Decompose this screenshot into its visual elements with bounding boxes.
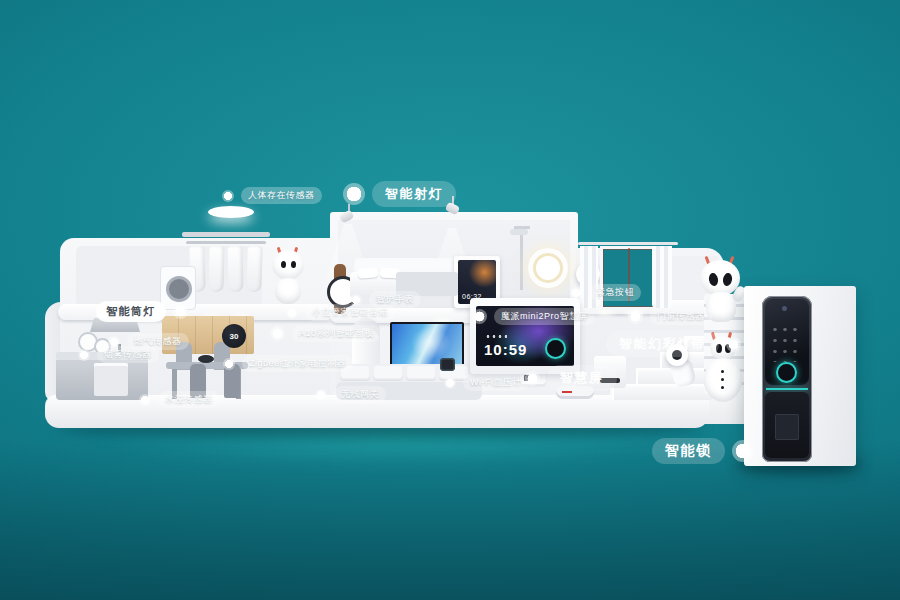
curtain-rod — [578, 242, 678, 245]
marker-dot-icon — [628, 309, 643, 324]
label-text: 水浸传感器 — [158, 391, 220, 408]
ceiling-light — [208, 206, 254, 218]
label-text: 智慧屏 — [547, 365, 617, 391]
label-wireless-gateway: 无线网关 — [315, 386, 386, 403]
label-text: 智护手表 — [369, 291, 421, 308]
screen-speaker-icon — [545, 338, 566, 359]
screen-status-icons — [485, 335, 507, 338]
marker-dot-icon — [732, 440, 754, 462]
marker-dot-icon — [78, 349, 90, 361]
label-text: 烟雾传感器 — [97, 346, 159, 363]
label-zigbee-ir-controller: Zigbee红外家电控制器 — [223, 355, 353, 372]
marker-dot-icon — [343, 183, 365, 205]
smart-panel-device: 30 — [222, 324, 246, 348]
drying-rack-rod — [186, 241, 266, 244]
label-text: A10系列智能面板 — [292, 325, 381, 342]
lock-sensor-pad — [775, 414, 799, 440]
label-smart-lock: 智能锁 — [652, 438, 754, 464]
label-door-window-sensor: 门窗传感器 — [628, 308, 712, 325]
sofa-cushion — [406, 366, 436, 381]
label-text: 魔派mini2Pro智慧屏 — [494, 308, 595, 325]
washing-machine-door — [166, 276, 192, 302]
label-text: 智能锁 — [652, 438, 725, 464]
hanging-cloth — [246, 246, 263, 292]
dishwasher — [94, 363, 128, 396]
label-a10-smart-panel: A10系列智能面板 — [270, 325, 381, 342]
sofa-cushion — [373, 366, 403, 381]
smart-home-poster: 30 06:32 10:59 — [0, 0, 900, 600]
fingerprint-ring-icon — [776, 362, 797, 383]
label-text: Wi-Fi血压计 — [463, 374, 529, 391]
marker-dot-icon — [139, 394, 151, 406]
marker-dot-icon — [173, 304, 188, 319]
screen-time: 10:59 — [484, 341, 527, 358]
stair-step — [612, 384, 712, 400]
label-text: 智能幻彩灯带 — [606, 331, 719, 357]
label-text: Zigbee红外家电控制器 — [242, 355, 353, 372]
label-light-strip: 智能幻彩灯带 — [606, 331, 741, 357]
marker-dot-icon — [570, 287, 582, 299]
label-care-watch: 智护手表 — [350, 291, 421, 308]
label-human-presence-sensor: 人体存在传感器 — [222, 187, 322, 204]
label-water-leak-sensor: 水浸传感器 — [139, 391, 220, 408]
marker-dot-icon — [350, 294, 362, 306]
lock-keypad — [770, 324, 800, 362]
pillow — [358, 267, 379, 278]
label-text: 人体存在传感器 — [241, 187, 322, 204]
marker-dot-icon — [270, 326, 285, 341]
label-text: 紧急按钮 — [589, 284, 641, 301]
marker-dot-icon — [223, 358, 235, 370]
label-wifi-bp-monitor: Wi-Fi血压计 — [444, 374, 529, 391]
label-smart-spotlight: 智能射灯 — [343, 181, 456, 207]
label-smart-screen: 智慧屏 — [525, 365, 617, 391]
thermostat-value: 30 — [230, 332, 239, 341]
marker-dot-icon — [525, 371, 540, 386]
marker-dot-icon — [444, 377, 456, 389]
label-text: 智能筒灯 — [96, 301, 166, 322]
label-emergency-button: 紧急按钮 — [570, 284, 641, 301]
drying-rack — [182, 232, 270, 237]
marker-dot-icon — [726, 337, 741, 352]
bath-heater-light — [528, 248, 568, 288]
shower-head — [510, 229, 528, 235]
label-text: 智能射灯 — [372, 181, 456, 207]
label-smart-downlight: 智能筒灯 — [96, 301, 188, 322]
lock-accent-line — [766, 388, 808, 390]
hanging-cloth — [228, 246, 244, 292]
marker-dot-icon — [222, 190, 234, 202]
table-bowl — [198, 355, 214, 363]
marker-dot-icon — [315, 389, 327, 401]
label-text: 门窗传感器 — [650, 308, 712, 325]
marker-dot-icon — [472, 309, 487, 324]
lock-camera-icon — [782, 306, 787, 311]
label-text: 无线网关 — [334, 386, 386, 403]
marker-dot-icon — [286, 307, 298, 319]
hanging-cloth — [209, 246, 225, 292]
shower-pole — [520, 226, 523, 290]
sofa-side-device — [440, 358, 455, 371]
deer-mascot-speaker — [264, 250, 312, 312]
label-smoke-sensor: 烟雾传感器 — [78, 346, 159, 363]
curtain — [652, 246, 672, 308]
smart-lock-device — [762, 296, 812, 462]
label-mini2pro-screen: 魔派mini2Pro智慧屏 — [472, 308, 595, 325]
